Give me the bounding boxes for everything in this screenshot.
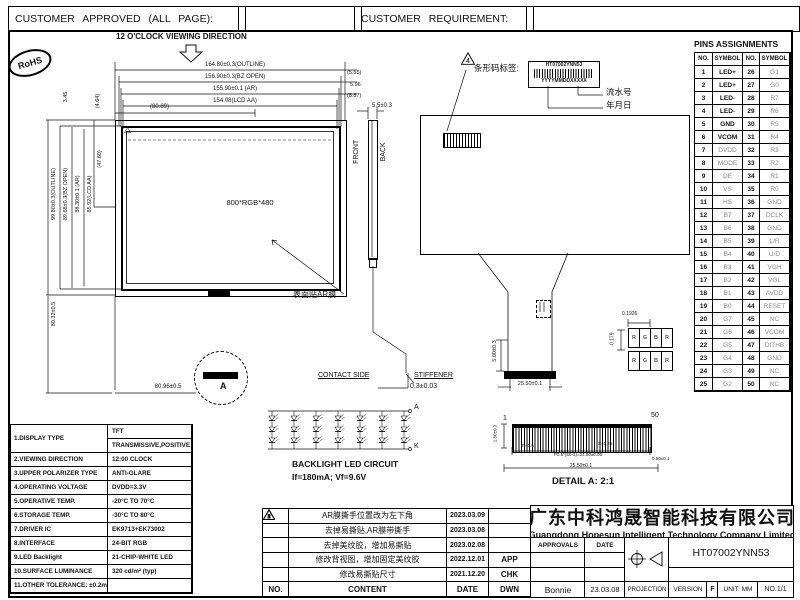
datasheet-page: CUSTOMER APPROVED (ALL PAGE): CUSTOMER R… <box>0 0 800 600</box>
dimension-linework <box>0 0 800 600</box>
